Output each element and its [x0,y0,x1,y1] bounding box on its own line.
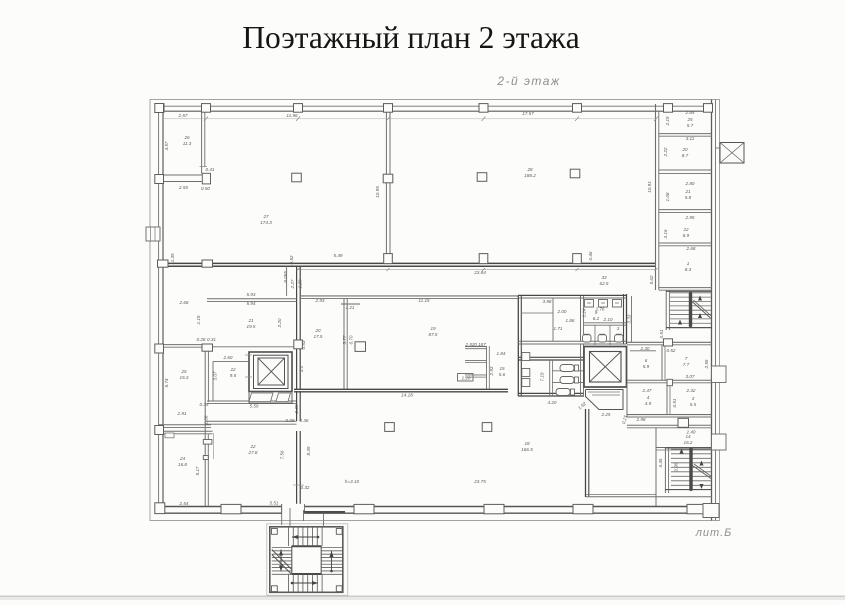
svg-text:3.33: 3.33 [627,314,632,323]
svg-text:4.9: 4.9 [645,401,652,406]
svg-text:3.20: 3.20 [277,318,282,327]
svg-text:0.50: 0.50 [201,186,210,191]
svg-text:9.055: 9.055 [283,271,288,283]
svg-text:87.5: 87.5 [429,332,438,337]
svg-text:0.51: 0.51 [672,398,677,407]
svg-text:62.5: 62.5 [600,281,609,286]
svg-text:15: 15 [499,366,505,371]
svg-text:0.52: 0.52 [667,348,676,353]
svg-text:9: 9 [595,310,598,315]
svg-text:5.77: 5.77 [342,335,347,344]
svg-text:7.19: 7.19 [540,372,545,381]
svg-text:0.187: 0.187 [474,342,486,347]
svg-text:5.8: 5.8 [685,195,692,200]
svg-text:2.84: 2.84 [685,110,695,115]
svg-text:17.5: 17.5 [314,334,323,339]
svg-text:16.8: 16.8 [178,462,187,467]
svg-text:2.95: 2.95 [685,215,695,220]
svg-text:5.93: 5.93 [247,292,256,297]
svg-text:25: 25 [686,117,693,122]
svg-text:лит.Б: лит.Б [695,527,733,539]
svg-text:2.19: 2.19 [665,116,670,126]
svg-text:1.08: 1.08 [665,192,670,201]
svg-text:188.2: 188.2 [524,173,536,178]
svg-text:2.32: 2.32 [686,388,696,393]
svg-text:0.46: 0.46 [588,251,593,260]
svg-text:2.93: 2.93 [489,366,494,376]
svg-text:3.0: 3.0 [299,365,304,372]
svg-text:3.98: 3.98 [543,299,552,304]
svg-text:27: 27 [262,214,269,219]
svg-text:5.51: 5.51 [270,501,279,506]
svg-text:17.57: 17.57 [522,111,534,116]
svg-text:3.07: 3.07 [213,371,218,380]
svg-text:0.32: 0.32 [301,485,310,490]
svg-text:0.08: 0.08 [286,418,295,423]
svg-text:7.7: 7.7 [683,362,690,367]
svg-text:33: 33 [601,275,607,280]
svg-text:2.55: 2.55 [178,185,188,190]
svg-text:3.95: 3.95 [674,462,679,471]
svg-text:Поэтажный план 2 этажа: Поэтажный план 2 этажа [242,20,579,55]
svg-text:3: 3 [692,396,695,401]
svg-text:3.07: 3.07 [686,374,695,379]
svg-text:4: 4 [647,395,650,400]
svg-text:0.36: 0.36 [300,418,309,423]
svg-text:6.46: 6.46 [658,458,663,467]
svg-text:1.21: 1.21 [346,305,355,310]
svg-text:18: 18 [524,441,530,446]
svg-text:10.95: 10.95 [375,186,380,198]
svg-text:8.3: 8.3 [685,267,692,272]
svg-text:h=3.10: h=3.10 [345,479,360,484]
svg-text:2.68: 2.68 [179,300,189,305]
svg-text:5.74: 5.74 [164,378,169,387]
svg-text:19.5: 19.5 [247,324,256,329]
svg-text:23.84: 23.84 [473,270,486,275]
svg-text:1.20: 1.20 [462,375,471,380]
svg-text:19: 19 [430,326,436,331]
svg-text:4.57: 4.57 [164,141,169,150]
svg-text:1: 1 [687,261,690,266]
svg-text:16.2: 16.2 [684,440,693,445]
svg-text:14.18: 14.18 [401,393,413,398]
svg-text:3.16: 3.16 [663,229,668,238]
svg-text:2.30: 2.30 [640,346,650,351]
svg-text:0.41: 0.41 [206,167,215,172]
svg-text:166.5: 166.5 [521,447,533,452]
svg-text:2.00: 2.00 [557,309,567,314]
svg-text:24: 24 [179,456,186,461]
svg-text:2.68: 2.68 [686,246,696,251]
svg-text:3: 3 [617,326,620,331]
svg-text:11.15: 11.15 [418,298,430,303]
svg-text:2.91: 2.91 [177,411,187,416]
svg-text:5.7: 5.7 [687,123,694,128]
svg-text:1.38: 1.38 [204,415,209,424]
svg-text:23.75: 23.75 [473,479,486,484]
svg-text:22: 22 [249,444,256,449]
svg-text:0.35: 0.35 [200,402,209,407]
svg-text:2.98: 2.98 [636,417,646,422]
svg-text:25: 25 [180,369,187,374]
svg-text:8.9: 8.9 [683,233,690,238]
svg-text:5.9: 5.9 [643,364,650,369]
svg-text:20: 20 [314,328,321,333]
svg-text:21: 21 [247,318,254,323]
svg-text:5.59: 5.59 [250,404,259,409]
svg-text:11.35: 11.35 [170,253,175,265]
svg-text:0.31: 0.31 [207,337,216,342]
svg-text:2.22: 2.22 [663,147,668,157]
svg-text:1.86: 1.86 [566,318,575,323]
svg-text:5.94: 5.94 [247,301,256,306]
svg-text:6: 6 [645,358,648,363]
svg-text:5.17: 5.17 [195,466,200,475]
svg-text:27.8: 27.8 [248,450,258,455]
svg-text:2.54: 2.54 [179,501,189,506]
svg-text:2.57: 2.57 [178,113,188,118]
svg-text:22: 22 [229,367,236,372]
svg-text:6.70: 6.70 [349,335,354,344]
svg-text:2.60: 2.60 [223,355,233,360]
svg-text:14: 14 [685,434,691,439]
svg-text:174.3: 174.3 [260,220,272,225]
svg-text:0.52: 0.52 [289,255,294,264]
svg-text:9.5: 9.5 [230,373,237,378]
svg-text:10.91: 10.91 [647,181,652,193]
svg-text:3.11: 3.11 [686,136,695,141]
svg-text:2.25: 2.25 [601,412,611,417]
svg-text:3.24: 3.24 [582,308,587,317]
svg-text:8.7: 8.7 [682,153,689,158]
svg-text:5.6: 5.6 [499,372,506,377]
svg-text:5.62: 5.62 [649,275,654,284]
svg-text:2.93: 2.93 [315,298,325,303]
svg-text:1.29: 1.29 [298,279,303,288]
svg-text:26: 26 [183,135,190,140]
svg-text:20: 20 [681,147,688,152]
svg-text:1.71: 1.71 [554,326,563,331]
svg-text:5.49: 5.49 [334,253,343,258]
svg-text:7: 7 [685,356,688,361]
svg-text:11.96: 11.96 [286,113,298,118]
svg-text:22: 22 [682,227,689,232]
svg-text:2-й этаж: 2-й этаж [496,74,560,88]
svg-text:2.10: 2.10 [603,317,613,322]
svg-text:1.15: 1.15 [196,315,201,324]
svg-text:5.5: 5.5 [690,402,697,407]
svg-text:2.47: 2.47 [642,388,652,393]
svg-text:4.20: 4.20 [548,400,557,405]
svg-text:2.39: 2.39 [294,404,299,414]
svg-text:15.3: 15.3 [180,375,189,380]
svg-text:2.80: 2.80 [685,181,695,186]
svg-text:1.84: 1.84 [497,351,506,356]
svg-text:8.39: 8.39 [306,446,311,455]
svg-text:0.51: 0.51 [659,329,664,338]
svg-text:7.56: 7.56 [280,450,285,459]
svg-text:2.27: 2.27 [290,279,295,289]
svg-text:21: 21 [684,189,691,194]
svg-text:6.2: 6.2 [593,316,600,321]
svg-text:0.53: 0.53 [301,340,306,349]
svg-text:2.55: 2.55 [704,359,709,369]
svg-text:0.28: 0.28 [197,337,206,342]
svg-text:28: 28 [526,167,533,172]
svg-text:11.3: 11.3 [183,141,192,146]
